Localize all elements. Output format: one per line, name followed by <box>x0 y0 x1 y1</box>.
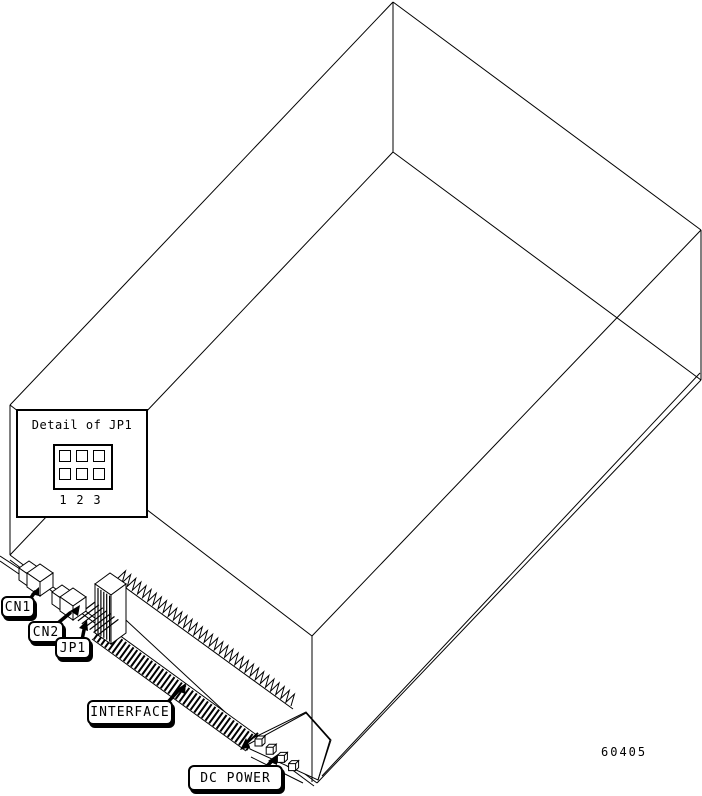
jp1-arrowhead <box>79 620 88 631</box>
interface-contact-band-underlay <box>93 624 258 751</box>
jp1-pin-square <box>76 468 88 480</box>
drive-wireframe <box>10 2 701 786</box>
jp1-pin-number: 2 <box>74 493 86 507</box>
jp1-pin-number: 1 <box>57 493 69 507</box>
callout-label-jp1: JP1 <box>55 637 91 659</box>
diagram-canvas: Detail of JP1 1 2 3 CN1 CN2 JP1 INTERFAC… <box>0 0 702 796</box>
bottom-rim-right-inner <box>322 373 700 776</box>
callout-label-interface: INTERFACE <box>87 700 173 725</box>
cn1-connector <box>0 556 53 596</box>
figure-number: 60405 <box>601 745 647 759</box>
callout-label-cn1: CN1 <box>1 596 35 618</box>
hidden-bottom-edge-right <box>393 152 701 380</box>
jp1-pin-square <box>59 468 71 480</box>
jp1-pin-number: 3 <box>91 493 103 507</box>
jp1-pin-square <box>93 468 105 480</box>
drive-line-art <box>0 0 702 796</box>
jp1-pin-numbers: 1 2 3 <box>53 493 117 507</box>
jp1-pin-square <box>59 450 71 462</box>
detail-inset: Detail of JP1 1 2 3 <box>16 409 148 518</box>
callout-label-dc-power: DC POWER <box>188 765 283 791</box>
interface-body-top-edge <box>115 580 293 709</box>
detail-inset-title: Detail of JP1 <box>18 418 146 432</box>
jp1-detail-grid <box>53 444 113 490</box>
top-edge-left <box>10 2 393 405</box>
jp1-pin-square <box>76 450 88 462</box>
interface-pin-row <box>117 571 294 706</box>
bottom-rim-right-outer <box>317 380 701 783</box>
top-edge-right <box>393 2 701 230</box>
jp1-pin-square <box>93 450 105 462</box>
top-edge-front-right <box>312 230 701 636</box>
